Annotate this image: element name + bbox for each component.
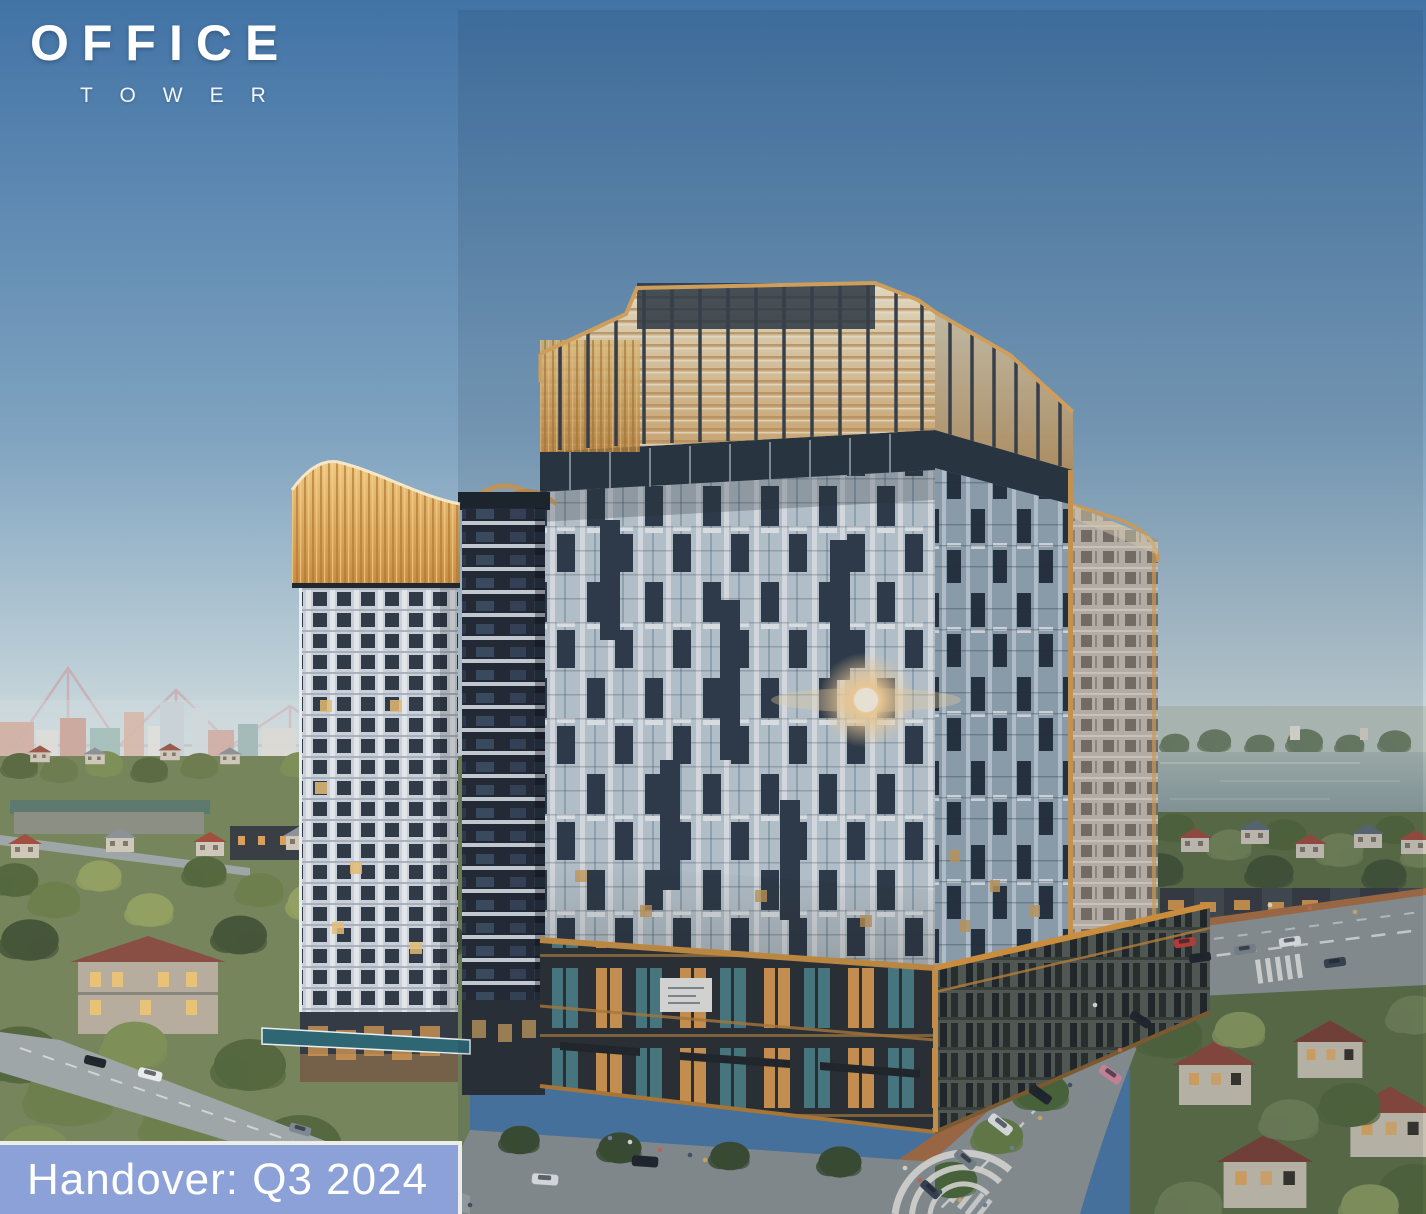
- logo-title: OFFICE: [30, 18, 293, 68]
- main-tower-right-face: [935, 312, 1073, 968]
- logo-subtitle: TOWER: [80, 84, 293, 108]
- podium-corner-gold-trim: [933, 968, 938, 1132]
- lake-and-far-shore: [1130, 706, 1426, 814]
- office-tower-marketing-render: OFFICE TOWER Handover: Q3 2024: [0, 0, 1426, 1214]
- logo: OFFICE TOWER: [30, 18, 293, 108]
- handover-banner-text: Handover: Q3 2024: [0, 1155, 428, 1205]
- building-rendering: [0, 0, 1426, 1214]
- handover-banner: Handover: Q3 2024: [0, 1141, 462, 1214]
- rear-wing-tower: [1073, 505, 1158, 936]
